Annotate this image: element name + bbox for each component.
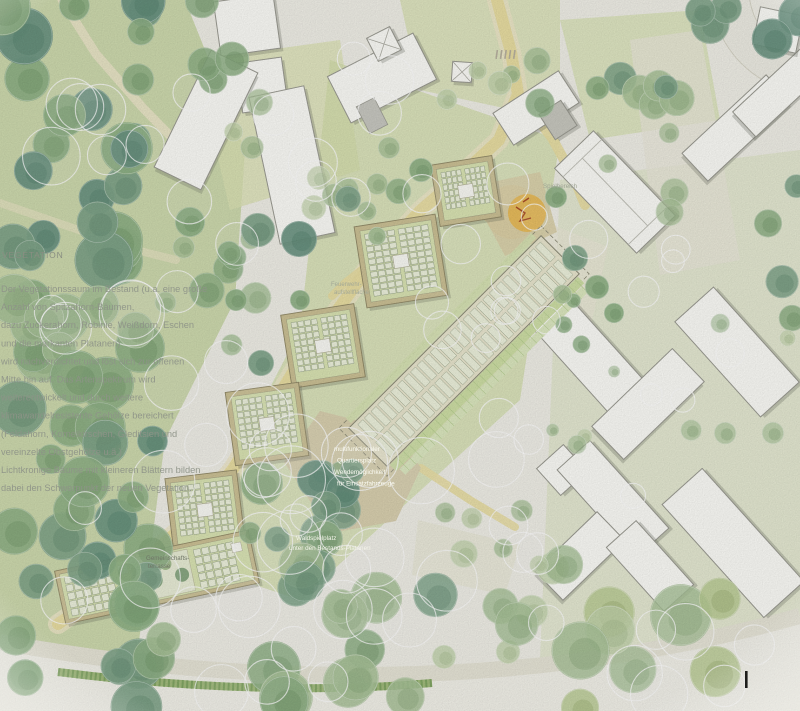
fire-access-label: aufstellfläche [334, 290, 370, 296]
vegetation-line: vereinzelte Obstgehölze u.ä.) [1, 447, 122, 457]
vegetation-line: Anzahl von Spitzahorn-Bäumen, [1, 302, 134, 312]
forest-playground-label: unter den Bestands-Platanen [289, 545, 371, 552]
vegetation-line: Mitte hin auf. Das Artenspektrum wird [1, 375, 156, 385]
vegetation-line: Lichtkronige Bäume mit kleineren Blätter… [1, 465, 200, 475]
fire-access-label: Feuerwehr- [331, 282, 362, 288]
community-terrace-label: Gemeinschafts- [146, 555, 189, 562]
vegetation-line: weiterentwickelt und durch weitere [0, 393, 143, 403]
plaza-label-line: Quartiersplatz [337, 458, 376, 465]
site-plan-canvas: VEGETATION Der Vegetationssaum im Bestan… [0, 0, 800, 711]
scale-tick-mark [745, 671, 748, 688]
vegetation-line: und die markanten Platanen) [1, 338, 120, 348]
plaza-label-line: für Einsatzfahrzeuge [337, 481, 395, 488]
site-plan: VEGETATION Der Vegetationssaum im Bestan… [0, 0, 800, 711]
plaza-label-line: multifunktionaler [334, 446, 380, 453]
community-terrace-label: terrasse [148, 563, 171, 570]
play-area-label: Spielbereich [543, 183, 578, 190]
vegetation-line: dazu Zuckerahorn, Robinie, Weißdorn, Esc… [1, 320, 194, 330]
vegetation-line: Der Vegetationssaum im Bestand (u.a. ein… [1, 284, 207, 294]
vegetation-line: dabei den Schwerpunkt der neuen Vegetati… [1, 483, 192, 493]
vegetation-line: klimawandelresistente Gehölze bereichert [1, 411, 174, 421]
vegetation-title: VEGETATION [2, 250, 64, 260]
vegetation-line: (Feldahorn, Kornelkirschen, Gleditsien u… [1, 429, 177, 439]
vegetation-line: wird nachverdichtet und löst sich zur of… [0, 356, 184, 366]
forest-playground-label: Waldspielplatz [296, 535, 336, 542]
plaza-label-line: Wendemöglichkeit [334, 469, 386, 476]
